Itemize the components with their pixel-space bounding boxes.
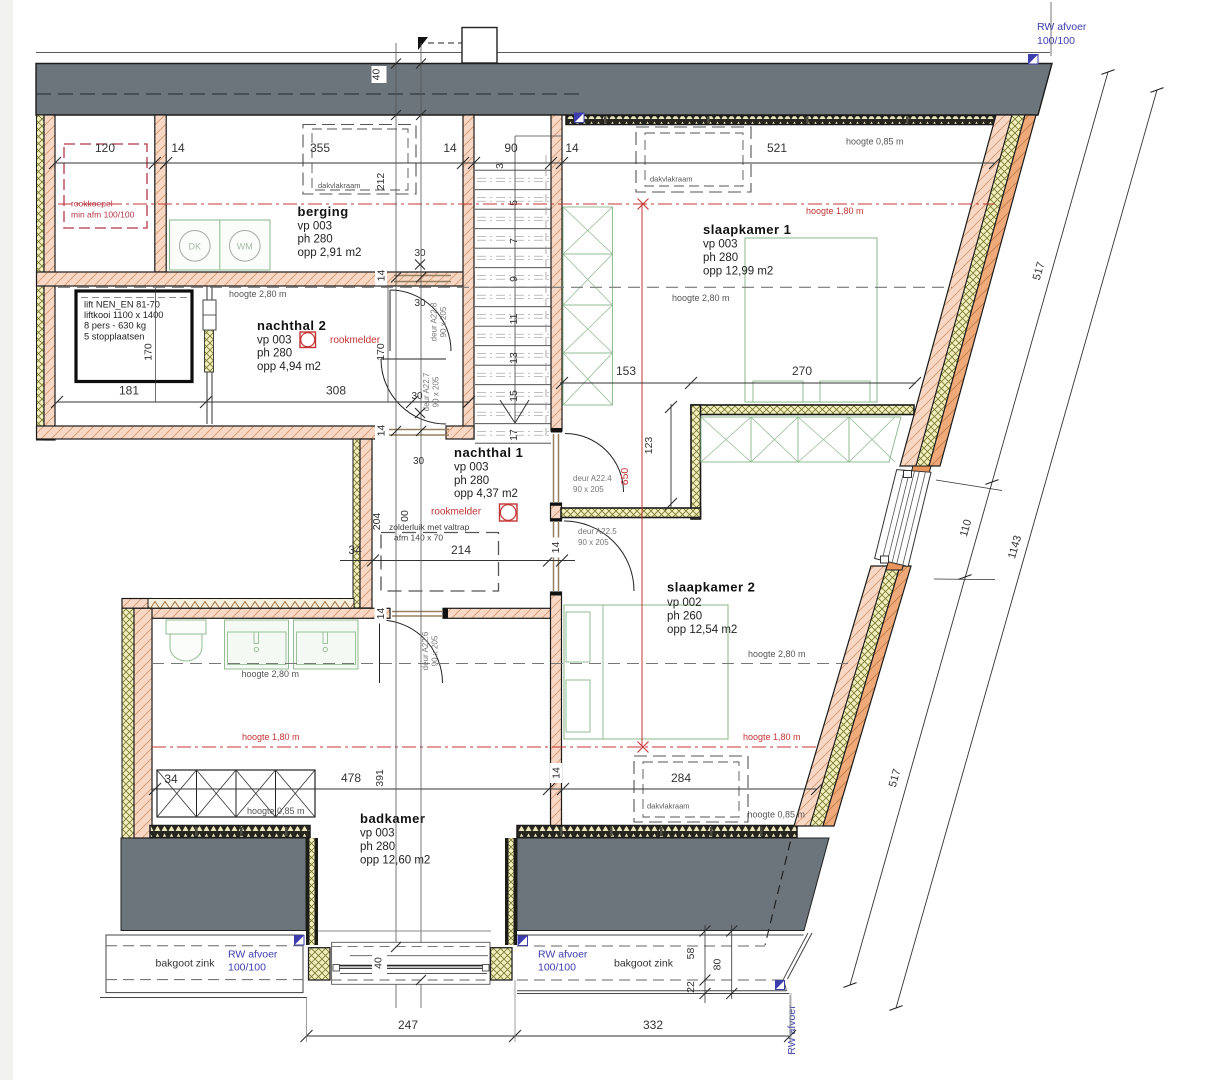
svg-text:9: 9 [508,276,520,282]
svg-text:90 x 205: 90 x 205 [573,485,604,494]
svg-text:270: 270 [792,364,812,378]
svg-text:17: 17 [508,429,520,441]
svg-text:478: 478 [341,771,361,785]
svg-text:90 x 205: 90 x 205 [431,635,440,666]
svg-text:hoogte 1,80 m: hoogte 1,80 m [242,732,300,742]
svg-text:lift NEN_EN 81-70: lift NEN_EN 81-70 [84,300,160,310]
svg-text:hoogte 2,80 m: hoogte 2,80 m [672,293,730,303]
svg-text:100/100: 100/100 [538,962,576,974]
svg-text:80: 80 [712,959,724,971]
svg-text:11: 11 [508,313,520,324]
svg-text:vp 003: vp 003 [257,335,292,347]
svg-text:hoogte 1,80 m: hoogte 1,80 m [743,732,801,742]
svg-text:120: 120 [95,141,115,155]
svg-text:afm 140 x 70: afm 140 x 70 [394,533,443,543]
svg-text:170: 170 [143,343,155,361]
svg-text:308: 308 [326,384,346,398]
svg-text:90 x 205: 90 x 205 [439,306,448,337]
svg-text:ph 280: ph 280 [454,475,489,487]
svg-text:30: 30 [411,391,423,402]
svg-text:3: 3 [494,163,506,169]
svg-text:vp 003: vp 003 [703,239,738,251]
svg-text:22: 22 [685,981,697,993]
svg-text:nachthal 1: nachthal 1 [454,445,523,460]
svg-text:hoogte 0,85 m: hoogte 0,85 m [748,810,806,820]
svg-text:521: 521 [767,141,787,155]
svg-text:90 x 205: 90 x 205 [578,538,609,547]
svg-text:14: 14 [551,767,563,779]
svg-text:nachthal 2: nachthal 2 [257,318,326,333]
svg-text:ph 280: ph 280 [703,252,738,264]
svg-text:ph 280: ph 280 [360,841,395,853]
svg-text:34: 34 [348,543,362,557]
svg-text:slaapkamer 2: slaapkamer 2 [667,580,755,595]
svg-text:40: 40 [371,69,383,81]
svg-text:204: 204 [371,513,383,531]
svg-text:rookmelder: rookmelder [431,507,482,518]
svg-text:rookmelder: rookmelder [330,335,381,346]
svg-text:vp 003: vp 003 [360,828,395,840]
svg-text:opp 2,91 m2: opp 2,91 m2 [298,247,362,259]
svg-text:30: 30 [414,298,426,309]
svg-text:14: 14 [171,141,185,155]
svg-text:90 x 205: 90 x 205 [432,376,441,407]
svg-text:hoogte 0,85 m: hoogte 0,85 m [247,806,305,816]
svg-text:14: 14 [375,608,387,620]
svg-text:212: 212 [375,173,387,191]
svg-text:zolderluik met valtrap: zolderluik met valtrap [389,522,470,532]
svg-text:181: 181 [119,384,139,398]
svg-text:opp 4,94 m2: opp 4,94 m2 [257,361,321,373]
svg-text:opp 4,37 m2: opp 4,37 m2 [454,488,518,500]
svg-text:30: 30 [414,248,426,259]
svg-text:DK: DK [189,241,202,251]
svg-text:hoogte 1,80 m: hoogte 1,80 m [806,206,864,216]
svg-text:14: 14 [443,141,457,155]
svg-text:RW afvoer: RW afvoer [228,949,278,961]
svg-text:58: 58 [685,948,697,960]
svg-text:170: 170 [375,343,387,361]
svg-text:15: 15 [508,390,520,402]
svg-text:284: 284 [671,771,691,785]
svg-text:90: 90 [504,141,518,155]
svg-text:5: 5 [508,200,520,206]
svg-text:vp 002: vp 002 [667,597,702,609]
svg-text:badkamer: badkamer [360,811,425,826]
svg-text:00: 00 [399,510,411,522]
svg-text:332: 332 [643,1018,663,1032]
svg-text:vp 003: vp 003 [454,462,489,474]
svg-text:40: 40 [373,957,385,969]
svg-text:deur A22.5: deur A22.5 [578,527,617,536]
svg-text:deur A22.6: deur A22.6 [421,631,430,670]
svg-text:30: 30 [413,456,425,467]
svg-text:RW afvoer: RW afvoer [538,949,588,961]
svg-text:214: 214 [451,543,471,557]
svg-text:100/100: 100/100 [228,962,266,974]
svg-text:dakvlakraam: dakvlakraam [647,802,690,811]
svg-text:8 pers - 630 kg: 8 pers - 630 kg [84,321,146,331]
svg-text:ph 280: ph 280 [257,348,292,360]
svg-text:153: 153 [616,364,636,378]
svg-text:deur A22.4: deur A22.4 [573,474,612,483]
svg-text:14: 14 [565,141,579,155]
svg-text:hoogte 2,80 m: hoogte 2,80 m [242,669,300,679]
svg-text:opp 12,54 m2: opp 12,54 m2 [667,624,737,636]
svg-text:bakgoot zink: bakgoot zink [614,958,674,970]
svg-text:355: 355 [310,141,330,155]
svg-text:RW afvoer: RW afvoer [786,1005,798,1055]
svg-text:deur A22.7: deur A22.7 [422,372,431,411]
svg-text:100/100: 100/100 [1037,35,1075,47]
svg-text:RW afvoer: RW afvoer [1037,21,1087,33]
svg-text:5 stopplaatsen: 5 stopplaatsen [84,331,144,341]
svg-text:13: 13 [508,352,520,364]
svg-text:liftkooi 1100 x 1400: liftkooi 1100 x 1400 [84,310,163,320]
svg-text:34: 34 [164,772,178,786]
svg-text:14: 14 [550,542,562,554]
svg-text:14: 14 [376,270,388,282]
svg-text:hoogte 0,85 m: hoogte 0,85 m [846,137,904,147]
svg-text:123: 123 [643,437,655,455]
svg-text:247: 247 [398,1018,418,1032]
svg-text:vp 003: vp 003 [298,221,333,233]
svg-text:dakvlakraam: dakvlakraam [318,181,361,190]
svg-text:650: 650 [619,468,631,486]
svg-text:min afm 100/100: min afm 100/100 [71,210,135,220]
svg-text:ph 260: ph 260 [667,611,702,623]
svg-text:dakvlakraam: dakvlakraam [650,175,693,184]
svg-text:ph 280: ph 280 [298,234,333,246]
svg-text:14: 14 [376,425,388,437]
svg-text:hoogte 2,80 m: hoogte 2,80 m [229,289,287,299]
svg-text:opp 12,60 m2: opp 12,60 m2 [360,855,430,867]
svg-text:WM: WM [237,241,253,251]
svg-text:bakgoot zink: bakgoot zink [156,958,216,970]
svg-text:slaapkamer 1: slaapkamer 1 [703,222,791,237]
svg-text:berging: berging [298,204,349,219]
svg-text:deur A22.8: deur A22.8 [430,302,439,341]
svg-text:391: 391 [374,769,386,787]
svg-text:hoogte 2,80 m: hoogte 2,80 m [748,649,806,659]
svg-text:7: 7 [508,238,520,244]
svg-text:opp 12,99 m2: opp 12,99 m2 [703,266,773,278]
